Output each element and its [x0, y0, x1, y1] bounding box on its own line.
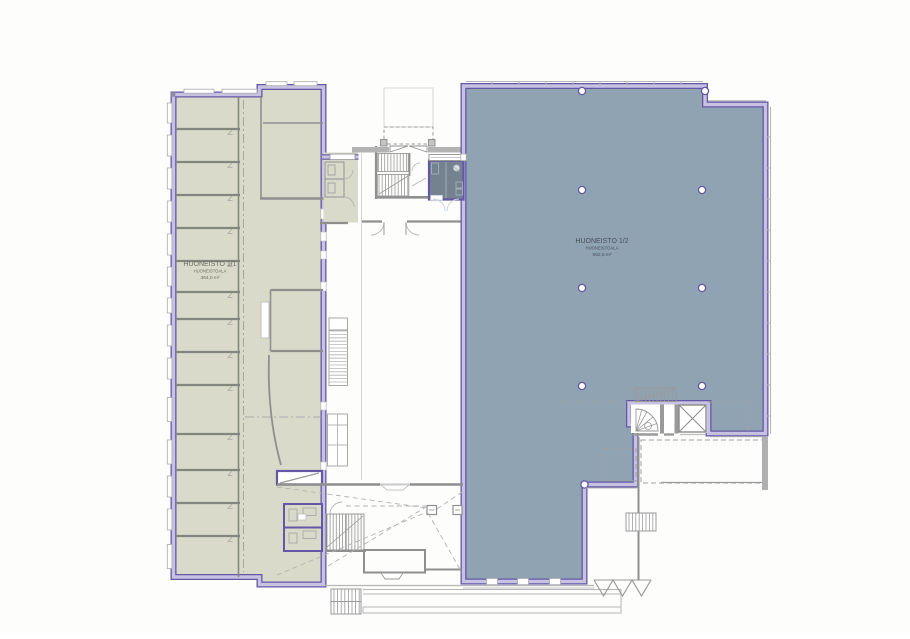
svg-text:364,0 m²: 364,0 m² — [201, 275, 220, 281]
svg-text:HUONEISTOALA: HUONEISTOALA — [194, 269, 227, 274]
svg-text:HUONEISTO 1/1: HUONEISTO 1/1 — [183, 261, 236, 268]
svg-text:852,5 m²: 852,5 m² — [593, 252, 612, 258]
svg-text:HUONEISTO 1/2: HUONEISTO 1/2 — [575, 238, 628, 245]
svg-text:HUONEISTOALA: HUONEISTOALA — [586, 246, 619, 251]
